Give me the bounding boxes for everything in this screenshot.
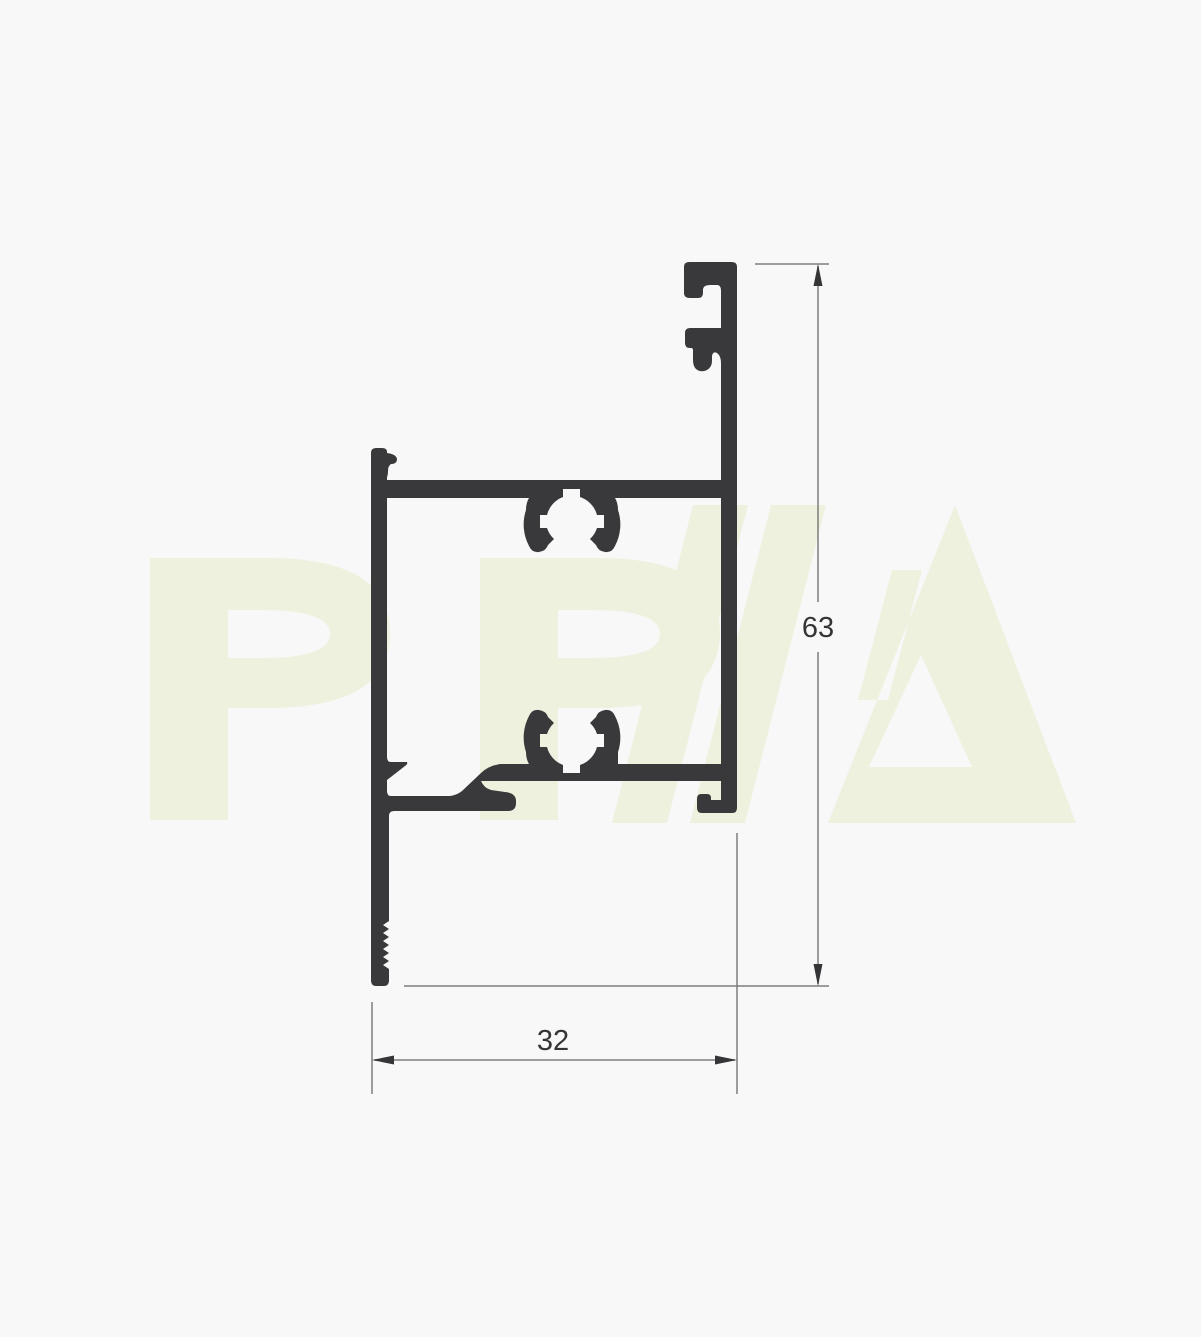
watermark-letter-a bbox=[828, 505, 1076, 823]
dimension-width: 32 bbox=[372, 833, 737, 1094]
technical-drawing: 63 32 bbox=[0, 0, 1201, 1337]
arrow-right-icon bbox=[715, 1056, 737, 1065]
arrow-up-icon bbox=[814, 264, 823, 286]
watermark-letter-p1 bbox=[150, 558, 390, 820]
arrow-left-icon bbox=[372, 1056, 394, 1065]
arrow-down-icon bbox=[814, 964, 823, 986]
drawing-canvas: 63 32 bbox=[0, 0, 1201, 1337]
dimension-height-label: 63 bbox=[802, 612, 834, 644]
dimension-width-label: 32 bbox=[537, 1025, 569, 1057]
